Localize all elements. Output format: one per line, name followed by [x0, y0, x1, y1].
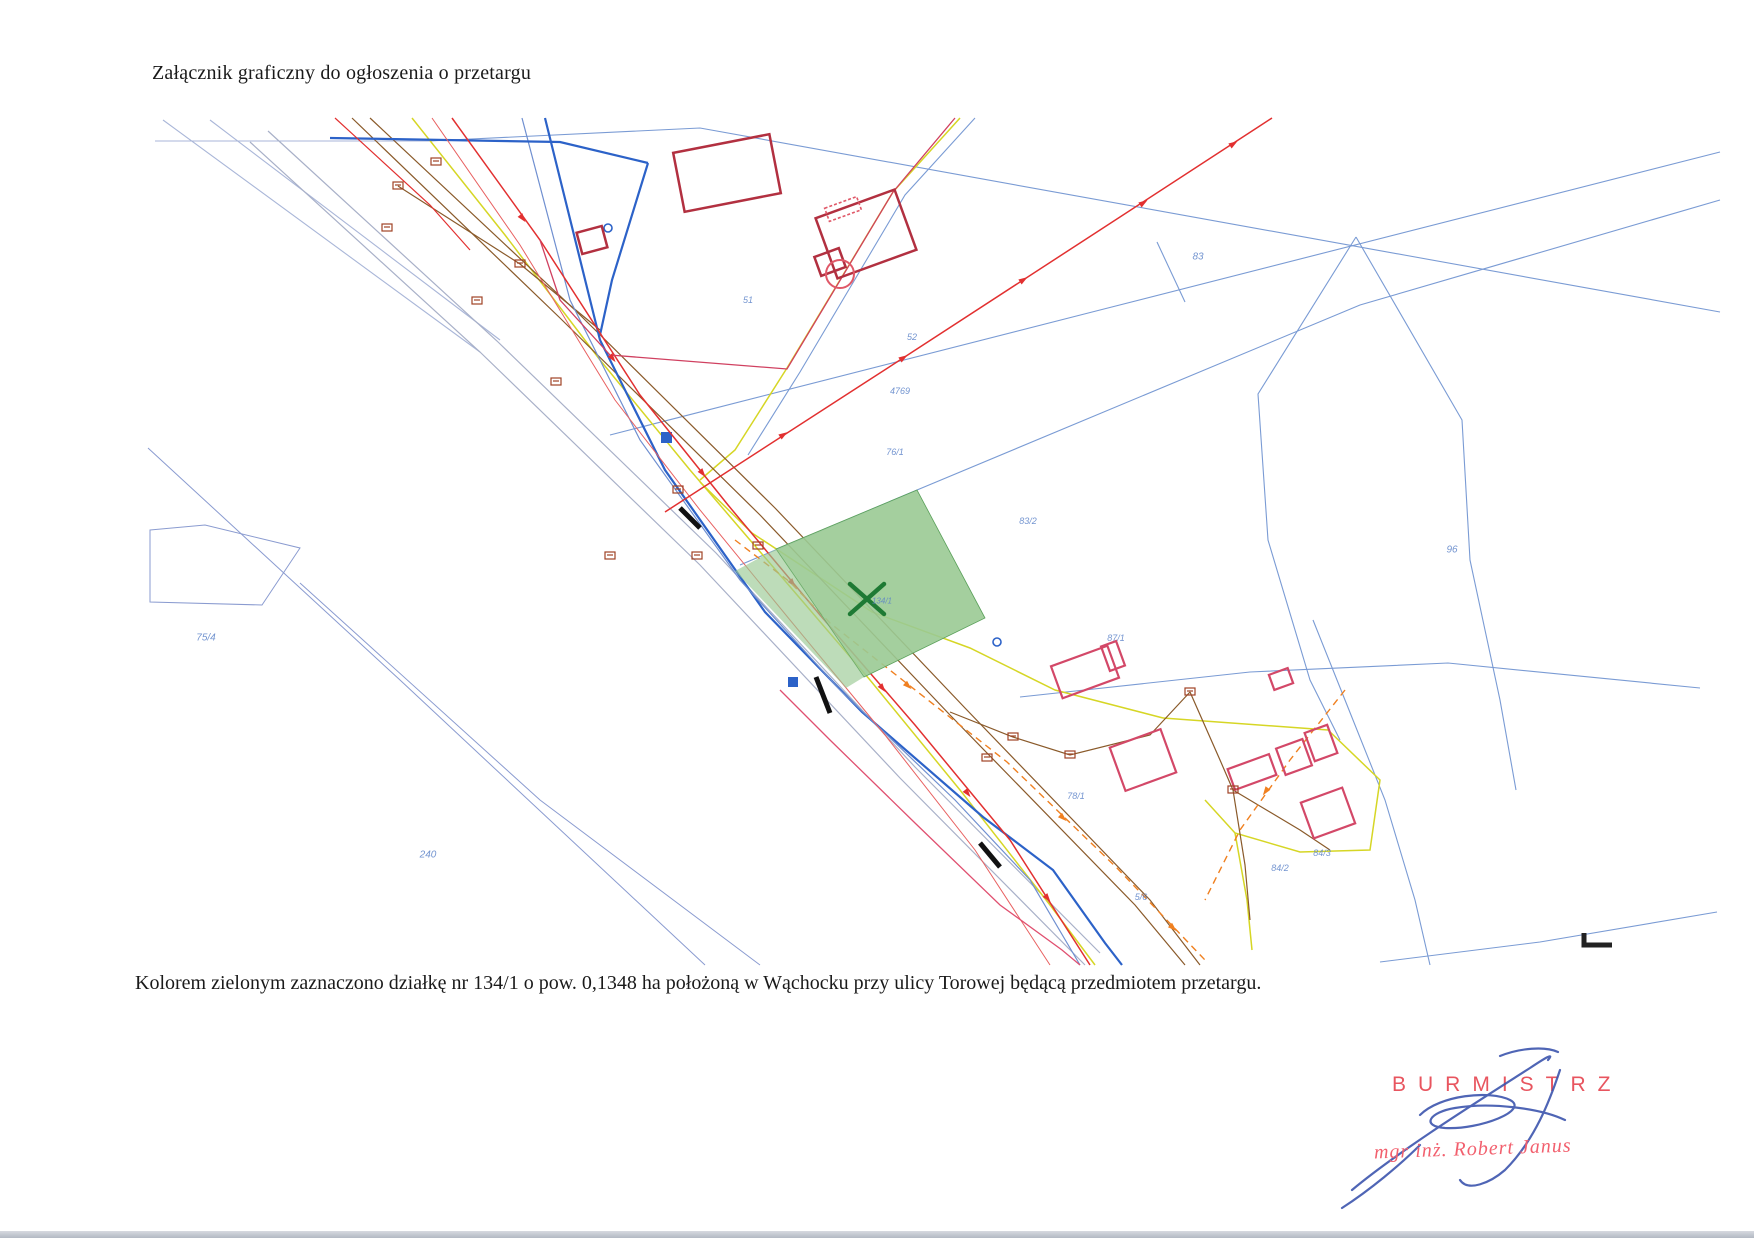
parcel-label: 84/2: [1271, 863, 1289, 873]
parcel-label: 83/2: [1019, 516, 1037, 526]
parcel-label: 51: [743, 295, 753, 305]
signature-block: BURMISTRZ mgr inż. Robert Janus: [1340, 1040, 1670, 1210]
parcel-label: 134/1: [872, 597, 892, 606]
map-caption: Kolorem zielonym zaznaczono działkę nr 1…: [135, 971, 1555, 996]
parcel-label: 84/3: [1313, 848, 1331, 858]
parcel-label: 5/6: [1135, 892, 1148, 902]
scan-edge-artifact: [0, 1231, 1754, 1238]
parcel-label: 78/1: [1067, 791, 1085, 801]
parcel-label: 240: [420, 850, 437, 861]
parcel-label: 75/4: [196, 633, 215, 644]
parcel-label: 52: [907, 332, 917, 342]
parcel-label: 87/1: [1107, 633, 1125, 643]
parcel-label: 96: [1446, 545, 1457, 556]
parcel-label: 83: [1192, 252, 1203, 263]
parcel-label: 4769: [890, 386, 910, 396]
parcel-label: 76/1: [886, 447, 904, 457]
handwritten-signature: [1340, 1040, 1670, 1210]
